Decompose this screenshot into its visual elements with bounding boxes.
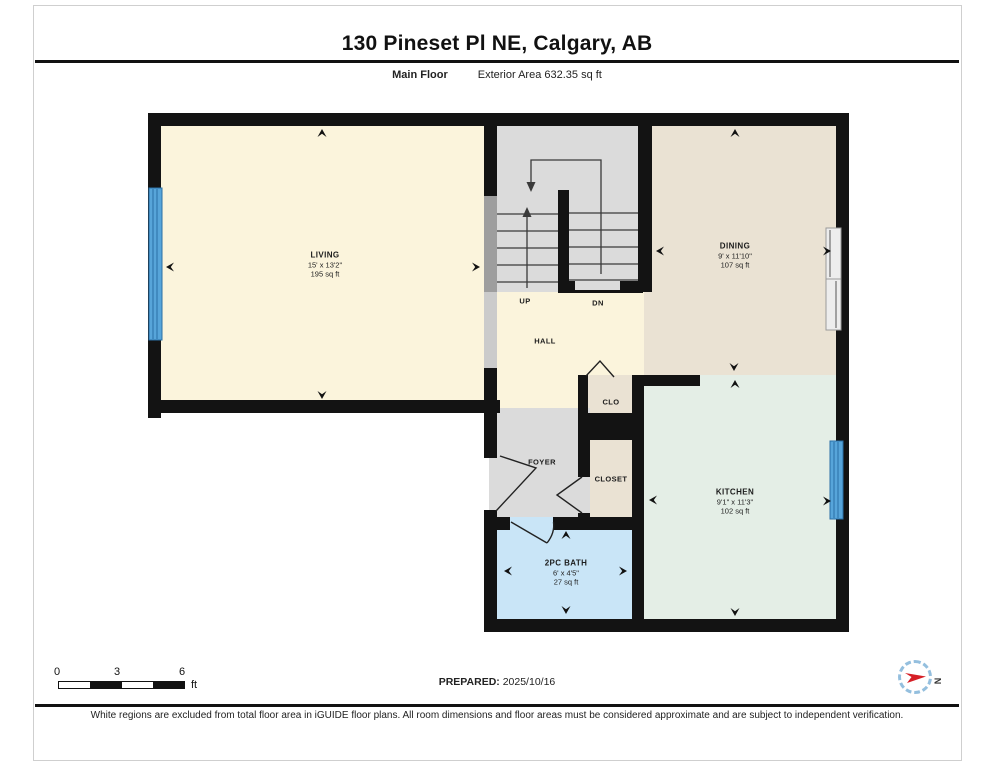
prepared-line: PREPARED: 2025/10/16: [0, 676, 994, 688]
staircase-fill: [489, 118, 650, 292]
foyer-label: FOYER: [528, 458, 556, 467]
clo-fill: [583, 375, 640, 415]
floorplan-page: 130 Pineset Pl NE, Calgary, AB Main Floo…: [0, 0, 994, 768]
prepared-label: PREPARED:: [439, 676, 500, 688]
bath-label: 2PC BATH 6' x 4'5" 27 sq ft: [545, 558, 588, 586]
clo-label: CLO: [602, 398, 619, 407]
compass-needle-icon: [901, 663, 929, 691]
closet-fill: [583, 427, 640, 517]
compass-north-label: N: [932, 678, 942, 685]
living-window: [149, 188, 162, 340]
kitchen-window: [830, 441, 843, 519]
living-label: LIVING 15' x 13'2" 195 sq ft: [308, 250, 342, 278]
hall-fill: [489, 292, 644, 376]
hall-extension-fill: [489, 376, 583, 410]
hall-label: HALL: [534, 337, 556, 346]
disclaimer-text: White regions are excluded from total fl…: [0, 710, 994, 721]
floorplan-drawing: [0, 0, 994, 768]
dining-label: DINING 9' x 11'10" 107 sq ft: [718, 241, 752, 269]
room-fills: [152, 118, 844, 632]
closet-label: CLOSET: [595, 475, 628, 484]
footer-divider: [35, 704, 959, 707]
prepared-date: 2025/10/16: [503, 676, 556, 688]
compass-icon: [898, 660, 932, 694]
up-label: UP: [519, 297, 530, 306]
down-label: DN: [592, 299, 604, 308]
dining-patio-door: [826, 228, 841, 330]
kitchen-label: KITCHEN 9'1" x 11'3" 102 sq ft: [716, 487, 754, 515]
